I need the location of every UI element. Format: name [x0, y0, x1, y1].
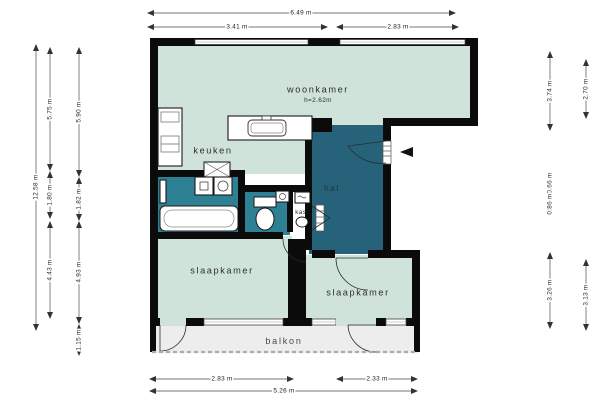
window-woonkamer-right: [340, 40, 465, 45]
window-slaapkamer-left: [204, 319, 283, 325]
dim-top-right: 2.83 m: [387, 24, 408, 31]
radiator-icon: [160, 180, 166, 203]
wall-bedroom1-top-a: [150, 232, 283, 239]
shaft-icon: [204, 162, 230, 177]
dim-right-inner-bottom: 3.26 m: [547, 279, 554, 300]
wall-right-lower: [412, 250, 420, 326]
bathtub-icon: [160, 206, 238, 231]
window-slaapkamer-right-a: [312, 319, 336, 325]
slaapkamer-left-label: slaapkamer: [190, 265, 254, 275]
slaapkamer-left-floor: [154, 236, 292, 321]
slaapkamer-right-label: slaapkamer: [326, 287, 390, 297]
dim-bottom-left: 2.83 m: [211, 376, 232, 383]
wall-balcony-seg1: [150, 318, 160, 326]
window-slaapkamer-right-b: [386, 319, 406, 325]
balkon-label: balkon: [265, 336, 302, 346]
dim-left-total: 12.58 m: [33, 174, 40, 199]
dim-left-outer-top: 5.75 m: [47, 98, 54, 119]
wall-keuken-badkamer: [150, 170, 245, 177]
wall-bedroom-separator: [288, 239, 306, 326]
boiler-icon: [295, 192, 310, 203]
dim-right-small-upper: 0.66 m: [547, 172, 554, 193]
wall-bedroom1-top-b: [306, 232, 312, 239]
dim-right-outer-bottom: 3.13 m: [583, 284, 590, 305]
dim-right-outer-top: 2.70 m: [583, 78, 590, 99]
wall-hal-top-chunk: [312, 118, 332, 132]
window-woonkamer-left: [195, 40, 308, 45]
dim-right-small-lower: 0.86 m: [547, 193, 554, 214]
wall-balcony-side-left: [150, 326, 156, 352]
dim-left-balcony: 1.15 m: [76, 329, 83, 350]
dim-right-inner-top: 3.74 m: [547, 80, 554, 101]
woonkamer-height-label: h=2.62m: [304, 97, 332, 104]
dim-left-outer-bottom: 4.43 m: [47, 259, 54, 280]
woonkamer-label: woonkamer: [286, 84, 349, 94]
wall-balcony-seg2: [186, 318, 204, 326]
floorplan-page: 6.49 m 3.41 m 2.83 m 2.83 m 2.33 m 5.26 …: [0, 0, 600, 400]
kitchen-island: [228, 116, 312, 140]
entry-arrow-icon: [400, 147, 413, 157]
washer-icon: [214, 177, 232, 195]
dim-left-inner-mid: 1.82 m: [76, 188, 83, 209]
dryer-icon: [195, 177, 213, 195]
keuken-label: keuken: [193, 145, 232, 155]
dim-bottom-total: 5.26 m: [273, 388, 294, 395]
dim-left-inner-bottom: 4.93 m: [76, 261, 83, 282]
kitchen-counter-left: [158, 108, 182, 166]
floorplan-canvas: 6.49 m 3.41 m 2.83 m 2.83 m 2.33 m 5.26 …: [0, 0, 600, 400]
hal-label: hal: [324, 184, 340, 193]
kast-label: kast: [295, 210, 308, 216]
dim-top-left: 3.41 m: [226, 24, 247, 31]
wall-hal-right-a: [383, 118, 391, 142]
wall-step-right: [383, 118, 478, 126]
wall-balcony-side-right: [414, 326, 420, 352]
wall-right-upper: [470, 38, 478, 126]
hal-floor: [309, 125, 386, 254]
dim-top-total: 6.49 m: [290, 10, 311, 17]
toilet-icon: [254, 197, 276, 230]
dim-left-inner-top: 5.90 m: [76, 101, 83, 122]
closet-basin-icon: [296, 217, 308, 227]
wall-balcony-seg4: [376, 318, 386, 326]
wall-badkamer-right: [238, 170, 245, 239]
hand-basin-icon: [276, 191, 289, 202]
dim-left-outer-mid: 1.80 m: [47, 184, 54, 205]
wall-left: [150, 38, 158, 326]
wall-balcony-seg5: [406, 318, 420, 326]
wall-hal-right-b: [383, 164, 391, 258]
dim-bottom-right: 2.33 m: [366, 376, 387, 383]
wall-hal-bottom-left: [312, 250, 335, 258]
